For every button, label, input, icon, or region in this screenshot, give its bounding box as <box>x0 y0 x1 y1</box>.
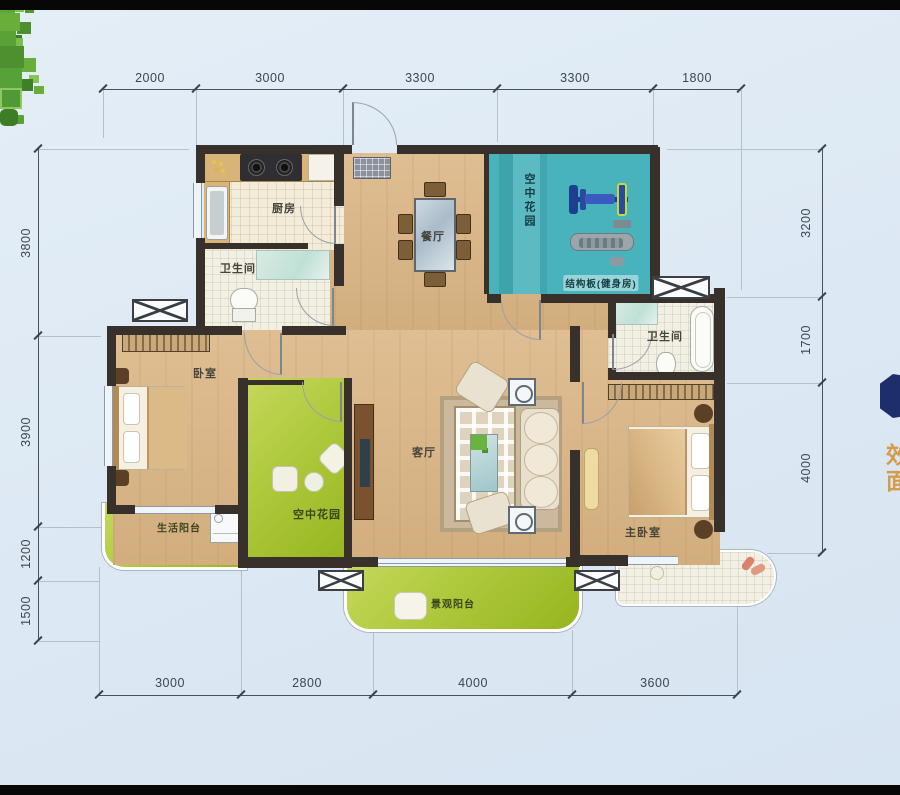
washer-dial <box>214 514 223 523</box>
dim-bottom-3: 4000 <box>458 676 488 690</box>
window <box>628 556 678 565</box>
sofa-cushion <box>524 412 558 444</box>
plant-icon <box>0 109 18 126</box>
treadmill-belt <box>579 238 623 248</box>
letterbox-top <box>0 0 900 10</box>
pillow <box>691 433 710 469</box>
nightstand <box>694 520 713 539</box>
sofa <box>520 408 560 510</box>
treadmill-icon <box>570 233 634 251</box>
stove-icon <box>240 154 302 181</box>
window-symbol <box>318 570 364 591</box>
bed-headboard <box>113 386 119 470</box>
sofa-cushion <box>524 444 558 476</box>
dim-left-3: 1200 <box>19 539 33 569</box>
sink-basin <box>210 191 224 235</box>
speaker-cone <box>515 385 533 403</box>
chaise <box>584 448 599 510</box>
toilet-tank <box>232 308 256 322</box>
room-label-bath1: 卫生间 <box>220 260 256 276</box>
room-label-sky-garden: 空中花园 <box>521 173 537 229</box>
dim-right-3: 4000 <box>799 453 813 483</box>
stone <box>304 472 324 492</box>
bench-seat <box>585 194 615 204</box>
dim-top-1: 2000 <box>135 71 165 85</box>
dim-top-4: 3300 <box>560 71 590 85</box>
bay-drain-icon <box>650 566 664 580</box>
plant-icon <box>0 88 22 109</box>
room-label-bath2: 卫生间 <box>647 328 683 344</box>
dim-bottom-4: 3600 <box>640 676 670 690</box>
dim-left-1: 3800 <box>19 228 33 258</box>
window <box>193 183 202 238</box>
speaker-cone <box>515 513 533 531</box>
nightstand <box>694 404 713 423</box>
washer-line <box>213 533 238 534</box>
dim-top-5: 1800 <box>682 71 712 85</box>
stone <box>394 592 427 620</box>
tub-inner <box>695 312 711 368</box>
table-glass <box>470 434 498 492</box>
letterbox-bottom <box>0 785 900 795</box>
stone <box>272 466 298 492</box>
gym-accessory <box>613 220 631 228</box>
room-label-gym-note: 结构板(健身房) <box>563 275 638 291</box>
kitchen-sink <box>206 186 228 240</box>
dining-chair <box>424 182 446 197</box>
gym-stool <box>610 257 624 266</box>
window <box>104 386 113 466</box>
plant-icon <box>0 68 22 88</box>
dining-chair <box>424 272 446 287</box>
bed <box>118 386 184 470</box>
burner-icon <box>248 159 265 176</box>
dim-bottom-2: 2800 <box>292 676 322 690</box>
dim-left-4: 1500 <box>19 596 33 626</box>
teal-stripe <box>499 153 513 294</box>
tv-screen <box>360 439 370 487</box>
fridge-icon <box>308 154 336 181</box>
room-label-view-balcony: 景观阳台 <box>431 596 475 611</box>
dim-right-2: 1700 <box>799 325 813 355</box>
door-track <box>378 563 566 564</box>
floor-plan-image: 2000 3000 3300 3300 1800 3000 2800 4000 … <box>0 0 900 795</box>
dining-chair <box>398 214 413 234</box>
dim-left-2: 3900 <box>19 417 33 447</box>
entry-doormat <box>353 157 391 179</box>
bench-press-plates <box>569 185 578 214</box>
wardrobe <box>122 332 210 352</box>
teal-stripe <box>540 153 547 294</box>
wardrobe <box>608 384 714 400</box>
shower-area <box>256 250 330 280</box>
compass-badge-icon <box>880 374 900 418</box>
dim-top-3: 3300 <box>405 71 435 85</box>
dim-top-2: 3000 <box>255 71 285 85</box>
dim-bottom-1: 3000 <box>155 676 185 690</box>
pillow <box>691 475 710 511</box>
window-symbol <box>574 570 620 591</box>
speaker-icon <box>508 378 536 406</box>
plant-icon <box>471 435 487 450</box>
window-symbol <box>652 276 710 299</box>
blanket <box>147 387 187 469</box>
window-symbol <box>132 299 188 322</box>
room-label-master: 主卧室 <box>625 524 661 540</box>
pillow <box>123 393 140 425</box>
room-label-courtyard: 空中花园 <box>293 506 341 522</box>
room-label-dining: 餐厅 <box>421 228 445 244</box>
dining-chair <box>398 240 413 260</box>
entry-door-arc <box>352 102 397 145</box>
tv-cabinet <box>354 404 374 520</box>
bed <box>628 426 714 518</box>
edge-text-char: 面 <box>886 462 900 496</box>
bench-press-plates <box>617 183 627 216</box>
sofa-cushion <box>524 476 558 508</box>
dining-chair <box>456 240 471 260</box>
room-label-bedroom: 卧室 <box>193 365 217 381</box>
blanket <box>629 429 687 515</box>
room-label-kitchen: 厨房 <box>272 200 296 216</box>
dining-chair <box>456 214 471 234</box>
plant-icon <box>0 31 16 46</box>
dim-right-1: 3200 <box>799 208 813 238</box>
egg-dots <box>212 160 216 164</box>
pillow <box>123 431 140 463</box>
window <box>135 506 215 514</box>
speaker-icon <box>508 506 536 534</box>
washing-machine-icon <box>210 510 240 543</box>
room-label-life-balcony: 生活阳台 <box>157 520 201 535</box>
sliding-door <box>378 558 566 567</box>
burner-icon <box>276 159 293 176</box>
shower-area <box>612 301 658 325</box>
plant-icon <box>0 46 24 68</box>
bathtub-icon <box>690 306 714 372</box>
room-label-living: 客厅 <box>412 444 436 460</box>
plant-icon <box>0 13 20 31</box>
